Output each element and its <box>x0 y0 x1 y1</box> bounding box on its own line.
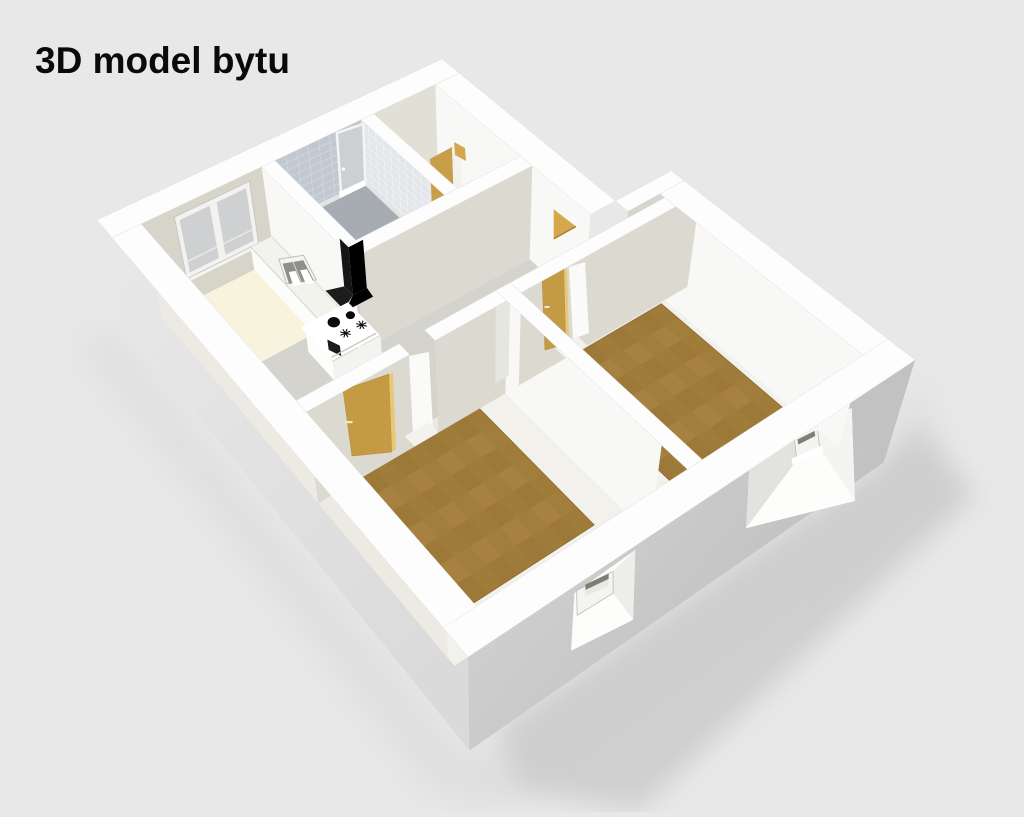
svg-text:3D model bytu: 3D model bytu <box>35 40 290 81</box>
